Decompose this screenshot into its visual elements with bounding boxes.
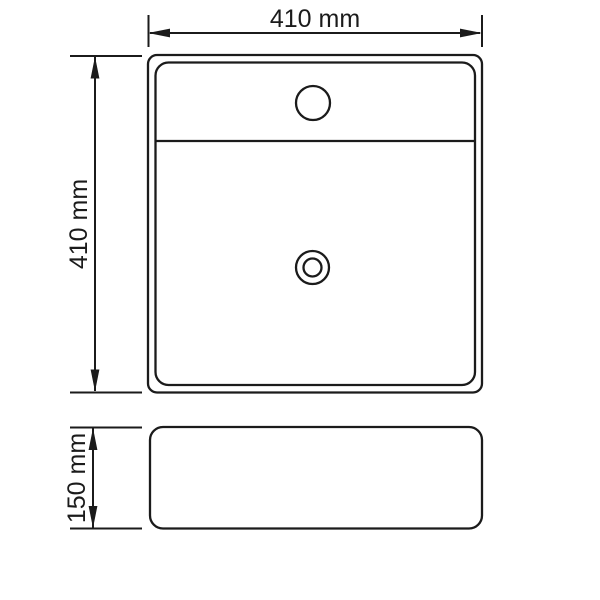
arrow-down-icon bbox=[91, 370, 100, 392]
height-dimension: 150 mm bbox=[63, 428, 142, 529]
width-dimension-label: 410 mm bbox=[270, 5, 360, 33]
side-view bbox=[150, 427, 482, 529]
arrow-right-icon bbox=[460, 29, 482, 38]
top-view bbox=[148, 55, 482, 393]
basin-outer-rim bbox=[148, 55, 482, 393]
basin-side-profile bbox=[150, 427, 482, 529]
drain-hole-icon bbox=[304, 259, 322, 277]
faucet-hole-icon bbox=[296, 86, 330, 120]
technical-drawing: 410 mm 410 mm 150 mm bbox=[0, 0, 600, 600]
depth-dimension-label: 410 mm bbox=[65, 179, 93, 269]
depth-dimension: 410 mm bbox=[65, 56, 142, 393]
arrow-left-icon bbox=[148, 29, 170, 38]
drawing-canvas: 410 mm 410 mm 150 mm bbox=[0, 0, 600, 600]
basin-inner-edge bbox=[156, 63, 476, 386]
drain-ring-icon bbox=[296, 251, 329, 284]
width-dimension: 410 mm bbox=[148, 5, 482, 47]
arrow-up-icon bbox=[91, 57, 100, 79]
height-dimension-label: 150 mm bbox=[63, 433, 91, 523]
